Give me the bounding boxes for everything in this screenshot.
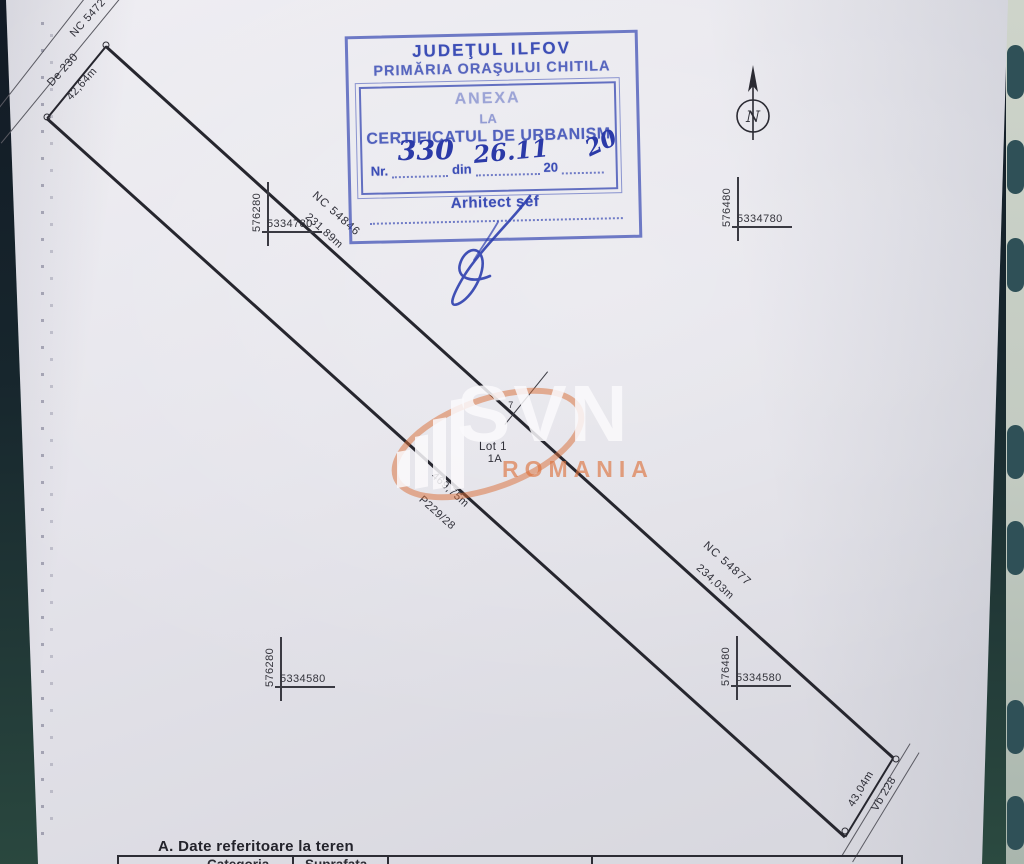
binding-hole: [1007, 425, 1024, 479]
stamp-date-value: 26.11: [472, 133, 550, 169]
table-vertical-line: [387, 855, 389, 864]
northing-label: 5334580: [736, 672, 782, 684]
binding-hole: [1007, 700, 1024, 754]
stamp-din-label: din: [452, 162, 472, 177]
table-header-category: Categoria: [207, 857, 269, 864]
easting-label: 576280: [265, 635, 276, 687]
watermark-country: ROMANIA: [502, 456, 654, 483]
northing-label: 5334780: [267, 218, 313, 230]
binding-hole: [1007, 238, 1024, 292]
north-arrow-icon: N: [731, 64, 775, 144]
binding-hole: [1007, 45, 1024, 99]
stamp-nr-label: Nr.: [371, 163, 389, 178]
stamp-year-dots: 20: [562, 158, 604, 175]
table-header-area: Suprafata: [305, 857, 367, 864]
table-vertical-line: [901, 855, 903, 864]
cross-vertical-line: [736, 636, 738, 700]
cross-vertical-line: [737, 177, 739, 241]
section-title: A. Date referitoare la teren: [158, 838, 354, 855]
northing-label: 5334780: [737, 213, 783, 225]
cross-horizontal-line: [732, 226, 792, 228]
cross-horizontal-line: [262, 231, 322, 233]
stamp-nr-dots: 330: [392, 161, 448, 178]
table-vertical-line: [117, 855, 119, 864]
cross-horizontal-line: [275, 686, 335, 688]
northing-label: 5334580: [280, 673, 326, 685]
watermark-brand: SVN: [457, 374, 631, 454]
north-letter: N: [745, 107, 761, 126]
binding-hole: [1007, 521, 1024, 575]
cross-horizontal-line: [731, 685, 791, 687]
stamp-number-value: 330: [397, 135, 454, 167]
corner-marker: [103, 42, 110, 49]
stamp-number-row: Nr. 330 din 26.11 20 20: [371, 157, 610, 178]
cross-vertical-line: [280, 637, 282, 701]
corner-marker: [842, 828, 849, 835]
stamp-annex-line1: ANEXA: [361, 87, 614, 111]
stamp-annex-box: ANEXA LA CERTIFICATUL DE URBANISM Nr. 33…: [359, 81, 618, 195]
binding-hole: [1007, 140, 1024, 194]
easting-label: 576480: [721, 634, 732, 686]
table-vertical-line: [591, 855, 593, 864]
easting-label: 576480: [722, 175, 733, 227]
cross-vertical-line: [267, 182, 269, 246]
easting-label: 576280: [252, 180, 263, 232]
scanned-cadastral-plan: 7 NC 5472 De 230 42,64m NC 54846 231,89m…: [0, 0, 1024, 864]
binding-hole: [1007, 796, 1024, 850]
corner-marker: [893, 756, 900, 763]
stamp-date-dots: 26.11: [475, 159, 539, 176]
corner-marker: [44, 114, 51, 121]
table-vertical-line: [292, 855, 294, 864]
signature: [428, 192, 548, 310]
